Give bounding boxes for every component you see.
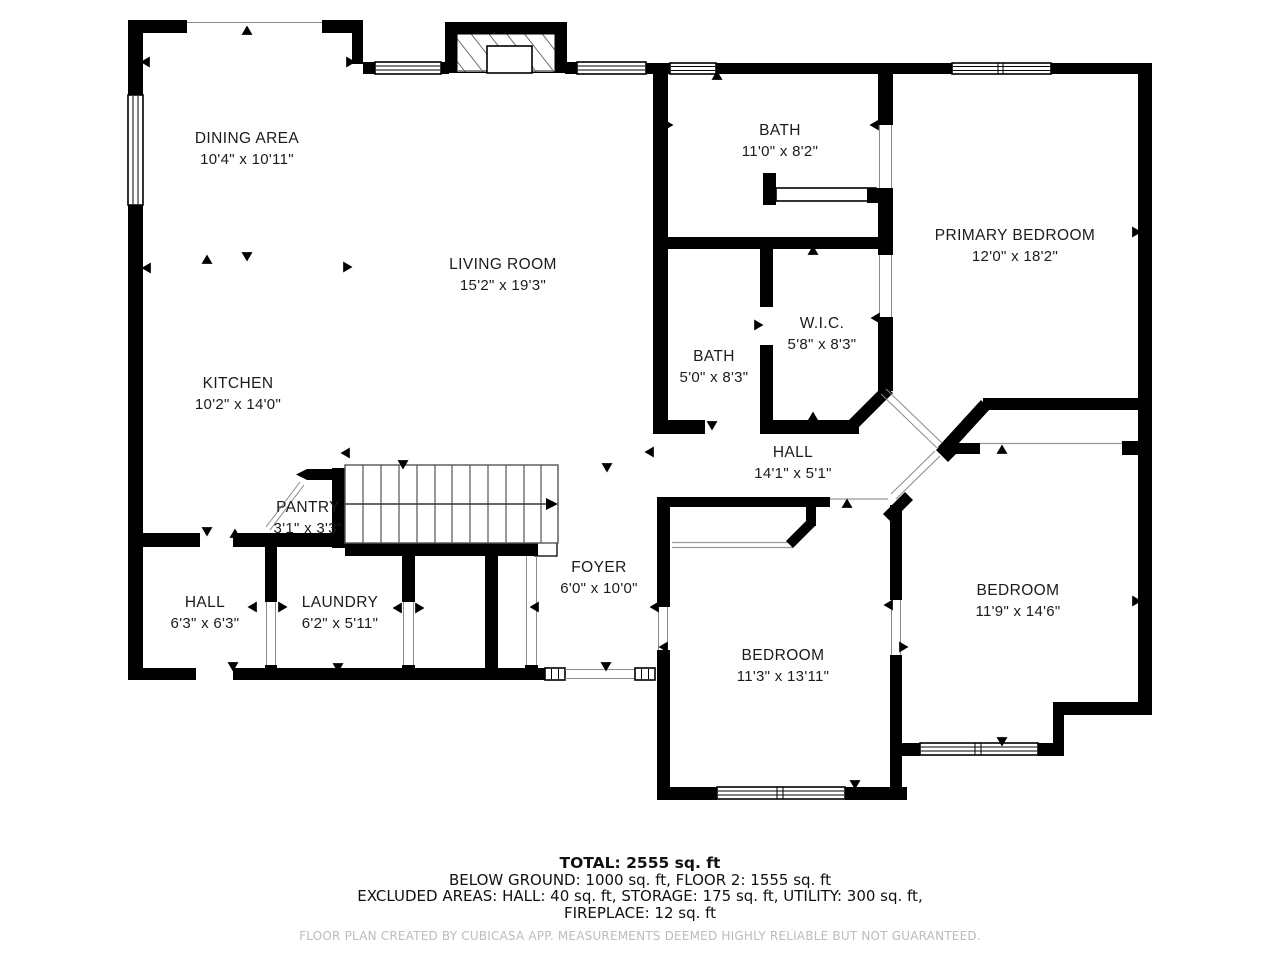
room-dims-8: 3'1" x 3'3" (274, 520, 343, 537)
room-label-3: BATH (759, 122, 801, 139)
room-dims-11: 6'2" x 5'11" (302, 615, 378, 632)
room-label-13: BEDROOM (977, 582, 1060, 599)
room-dims-9: 6'0" x 10'0" (560, 580, 638, 597)
opening-marker (884, 600, 893, 611)
room-label-12: BEDROOM (742, 647, 825, 664)
room-dims-3: 11'0" x 8'2" (742, 143, 818, 160)
room-label-5: W.I.C. (800, 315, 845, 332)
opening-marker (343, 262, 352, 273)
summary-line-3: EXCLUDED AREAS: HALL: 40 sq. ft, STORAGE… (0, 889, 1280, 905)
opening-marker (242, 26, 253, 35)
windows (128, 62, 1051, 799)
opening-marker (393, 603, 402, 614)
opening-marker (530, 602, 539, 613)
opening-marker (341, 448, 350, 459)
room-label-2: KITCHEN (203, 375, 274, 392)
room-dims-6: 5'0" x 8'3" (680, 369, 749, 386)
opening-marker (202, 255, 213, 264)
opening-marker (278, 602, 287, 613)
summary-line-4: FIREPLACE: 12 sq. ft (0, 906, 1280, 922)
opening-marker (871, 313, 880, 324)
room-label-0: DINING AREA (195, 130, 300, 147)
fireplace (445, 22, 567, 73)
summary-line-2: BELOW GROUND: 1000 sq. ft, FLOOR 2: 1555… (0, 873, 1280, 889)
opening-marker (754, 320, 763, 331)
opening-marker (601, 662, 612, 671)
room-dims-13: 11'9" x 14'6" (975, 603, 1060, 620)
opening-marker (808, 412, 819, 421)
room-label-1: LIVING ROOM (449, 256, 557, 273)
opening-marker (870, 120, 879, 131)
room-dims-1: 15'2" x 19'3" (460, 277, 546, 294)
opening-marker (707, 421, 718, 430)
room-dims-5: 5'8" x 8'3" (788, 336, 857, 353)
staircase (345, 465, 558, 543)
opening-marker (664, 120, 673, 131)
opening-marker (202, 527, 213, 536)
room-dims-4: 12'0" x 18'2" (972, 248, 1058, 265)
interior-walls (128, 63, 1152, 800)
opening-marker (602, 463, 613, 472)
opening-marker (242, 252, 253, 261)
room-dims-0: 10'4" x 10'11" (200, 151, 294, 168)
opening-marker (415, 603, 424, 614)
opening-marker (997, 445, 1008, 454)
room-label-4: PRIMARY BEDROOM (935, 227, 1095, 244)
floor-plan-page: DINING AREA10'4" x 10'11"LIVING ROOM15'2… (0, 0, 1280, 960)
room-label-6: BATH (693, 348, 735, 365)
room-label-8: PANTRY (276, 499, 340, 516)
opening-marker (899, 642, 908, 653)
door-swing-lines (881, 389, 942, 499)
opening-marker (248, 602, 257, 613)
room-label-7: HALL (773, 444, 813, 461)
opening-marker (842, 499, 853, 508)
room-label-9: FOYER (571, 559, 626, 576)
footer-disclaimer: FLOOR PLAN CREATED BY CUBICASA APP. MEAS… (0, 929, 1280, 943)
room-dims-2: 10'2" x 14'0" (195, 396, 281, 413)
room-labels: DINING AREA10'4" x 10'11"LIVING ROOM15'2… (171, 122, 1096, 685)
room-label-10: HALL (185, 594, 225, 611)
room-label-11: LAUNDRY (302, 594, 379, 611)
floor-plan-drawing: DINING AREA10'4" x 10'11"LIVING ROOM15'2… (0, 0, 1280, 960)
opening-marker (650, 602, 659, 613)
summary-total: TOTAL: 2555 sq. ft (0, 856, 1280, 872)
room-dims-10: 6'3" x 6'3" (171, 615, 240, 632)
room-dims-7: 14'1" x 5'1" (754, 465, 832, 482)
opening-marker (645, 447, 654, 458)
area-summary: TOTAL: 2555 sq. ft BELOW GROUND: 1000 sq… (0, 856, 1280, 922)
room-dims-12: 11'3" x 13'11" (737, 668, 830, 685)
